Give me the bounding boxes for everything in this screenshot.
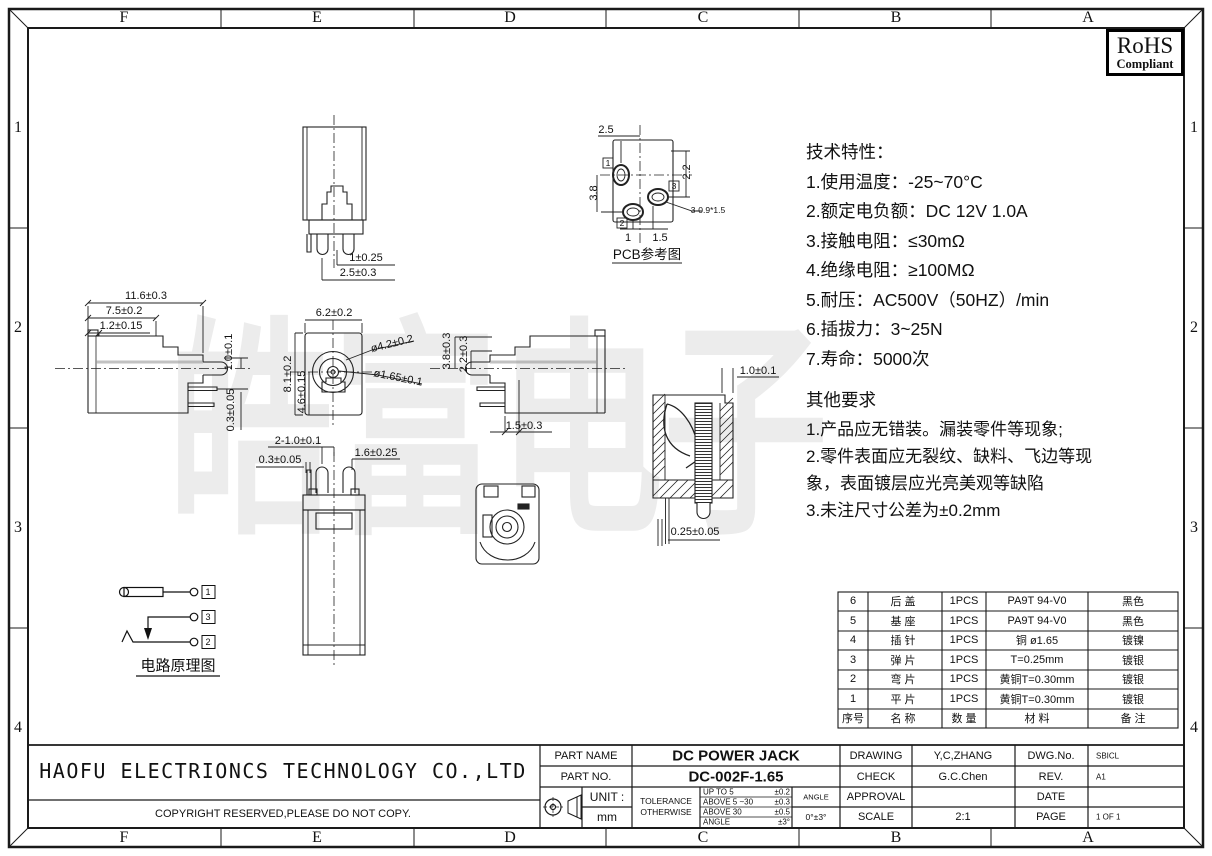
bom-cell: 镀银 [1122,671,1144,687]
bom-cell: 黄铜T=0.30mm [1000,691,1075,707]
bom-cell: 6 [850,595,856,607]
terminal-number: 1 [205,587,210,597]
bom-header: 序号 [842,710,864,726]
tech-item: 2.额定电负额：DC 12V 1.0A [806,197,1198,227]
dim-label: 4.6±0.15 [296,371,308,414]
bom-cell: 1 [850,693,856,705]
dim-callout: 3-0.9*1.5 [691,205,726,215]
part-name-value: DC POWER JACK [672,748,800,765]
part-no-label: PART NO. [561,771,612,783]
dim-label: 0.25±0.05 [671,526,720,538]
bom-cell: 1PCS [950,595,979,607]
frame-col-label: D [504,9,516,27]
bom-cell: 镀镍 [1122,632,1144,648]
tech-item: 4.绝缘电阻：≥100MΩ [806,256,1198,286]
tol-value: ±0.2 [774,788,790,797]
frame-col-label: A [1082,9,1094,27]
terminal-number: 3 [205,612,210,622]
dim-label: 1.0±0.1 [740,365,777,377]
bom-cell: 1PCS [950,634,979,646]
other-item: 象，表面镀层应光亮美观等缺陷 [806,470,1198,497]
dim-label: 6.2±0.2 [316,307,353,319]
dwg-no-label: DWG.No. [1027,750,1074,762]
bom-cell: 镀银 [1122,691,1144,707]
bom-header: 材 料 [1024,710,1049,726]
page-label: PAGE [1036,811,1066,823]
tol-range: ANGLE [703,818,730,827]
tol-value: ±3° [778,818,790,827]
other-item: 3.未注尺寸公差为±0.2mm [806,497,1198,524]
tol-range: ABOVE 5 ~30 [703,798,753,807]
tol-range: ABOVE 30 [703,808,742,817]
pad-number: 3 [672,181,677,191]
scale-label: SCALE [858,811,894,823]
dim-label: 1±0.25 [349,252,383,264]
company-name: HAOFU ELECTRIONCS TECHNOLOGY CO.,LTD [39,759,526,783]
dim-label: 0.3±0.05 [225,389,237,432]
bom-cell: 黄铜T=0.30mm [1000,671,1075,687]
bom-cell: 基 座 [890,613,915,629]
pad-number: 2 [620,218,625,228]
bom-header: 备 注 [1120,710,1145,726]
tol-value: ±0.3 [774,798,790,807]
rev-label: REV. [1039,771,1064,783]
dim-label: 1.0±0.1 [223,334,235,371]
bom-header: 名 称 [890,710,915,726]
pad-number: 1 [606,158,611,168]
bom-cell: 1PCS [950,673,979,685]
frame-col-label: A [1082,829,1094,847]
dwg-no-value: SBICL [1096,752,1119,761]
check-value: G.C.Chen [939,771,988,783]
other-item: 2.零件表面应无裂纹、缺料、飞边等现 [806,443,1198,470]
angle-value: 0°±3° [806,812,827,822]
pcb-view-title: PCB参考图 [613,243,681,263]
frame-col-label: F [120,9,129,27]
dim-label: 11.6±0.3 [125,290,167,302]
tech-item: 3.接触电阻：≤30mΩ [806,227,1198,257]
dim-label: 2.2 [681,164,693,179]
dim-label: 7.5±0.2 [106,305,143,317]
frame-col-label: E [312,9,322,27]
circuit-title: 电路原理图 [140,655,215,676]
unit-value: mm [597,810,617,824]
tech-title: 技术特性： [806,138,1198,168]
frame-col-label: E [312,829,322,847]
frame-row-label: 3 [14,519,22,537]
tech-item: 6.插拔力：3~25N [806,315,1198,345]
page-value: 1 OF 1 [1096,813,1120,822]
bom-cell: 1PCS [950,693,979,705]
tolerance-label: TOLERANCE [640,796,692,806]
frame-row-label: 1 [14,119,22,137]
bom-cell: 黑色 [1122,613,1144,629]
bom-cell: PA9T 94-V0 [1008,595,1067,607]
bom-cell: 2 [850,673,856,685]
view-bottom [256,447,400,665]
bom-cell: 平 片 [890,691,915,707]
tol-range: UP TO 5 [703,788,734,797]
frame-col-label: C [698,9,709,27]
bom-cell: 弯 片 [890,671,915,687]
bom-cell: PA9T 94-V0 [1008,615,1067,627]
frame-col-label: F [120,829,129,847]
frame-col-label: B [891,9,902,27]
drawing-sheet: 皓富电子 [0,0,1212,856]
bom-cell: 插 针 [890,632,915,648]
dim-label: 3.8 [588,185,600,200]
tech-item: 1.使用温度：-25~70°C [806,168,1198,198]
bom-cell: 镀银 [1122,652,1144,668]
frame-col-label: C [698,829,709,847]
part-name-label: PART NAME [555,750,618,762]
bom-cell: 弹 片 [890,652,915,668]
bom-cell: T=0.25mm [1011,654,1064,666]
rohs-subtitle: Compliant [1117,58,1174,71]
view-back [476,484,539,564]
dim-label: 2.5 [598,124,613,136]
tech-item: 7.寿命：5000次 [806,345,1198,375]
view-section [653,368,779,546]
part-no-value: DC-002F-1.65 [688,769,783,786]
otherwise-label: OTHERWISE [640,807,691,817]
frame-row-label: 2 [14,319,22,337]
check-label: CHECK [857,771,896,783]
bom-cell: 1PCS [950,615,979,627]
bom-cell: 3 [850,654,856,666]
dim-label: 1.6±0.25 [355,447,398,459]
dim-label: 2-1.0±0.1 [275,435,321,447]
other-item: 1.产品应无错装。漏装零件等现象; [806,416,1198,443]
dim-label: 1.2±0.15 [100,320,143,332]
dim-label: 8.1±0.2 [282,356,294,393]
other-title: 其他要求 [806,386,1198,416]
tech-item: 5.耐压：AC500V（50HZ）/min [806,286,1198,316]
frame-col-label: D [504,829,516,847]
bom-cell: 铜 ø1.65 [1016,632,1058,648]
angle-label: ANGLE [803,793,828,802]
frame-row-label: 4 [14,719,22,737]
bom-cell: 黑色 [1122,593,1144,609]
drawing-value: Y,C,ZHANG [934,750,992,762]
bom-cell: 5 [850,615,856,627]
bom-cell: 4 [850,634,856,646]
dim-label: 3.8±0.3 [441,333,453,370]
rohs-title: RoHS [1117,34,1173,58]
unit-label: UNIT : [590,790,624,804]
dim-label: 0.3±0.05 [259,454,302,466]
date-label: DATE [1037,791,1066,803]
dim-label: 2.2±0.3 [458,336,470,373]
technical-notes: 技术特性： 1.使用温度：-25~70°C 2.额定电负额：DC 12V 1.0… [806,138,1198,524]
drawing-label: DRAWING [850,750,903,762]
rev-value: A1 [1096,773,1106,782]
terminal-number: 2 [205,637,210,647]
frame-col-label: B [891,829,902,847]
copyright-text: COPYRIGHT RESERVED,PLEASE DO NOT COPY. [155,808,411,820]
bom-cell: 后 盖 [890,593,915,609]
approval-label: APPROVAL [847,791,906,803]
rohs-badge: RoHS Compliant [1106,29,1184,76]
dim-label: 2.5±0.3 [340,267,377,279]
bom-header: 数 量 [951,710,976,726]
dim-label: 1.5±0.3 [506,420,543,432]
frame-row-label: 1 [1190,119,1198,137]
tol-value: ±0.5 [774,808,790,817]
scale-value: 2:1 [955,811,970,823]
frame-row-label: 4 [1190,719,1198,737]
bom-cell: 1PCS [950,654,979,666]
